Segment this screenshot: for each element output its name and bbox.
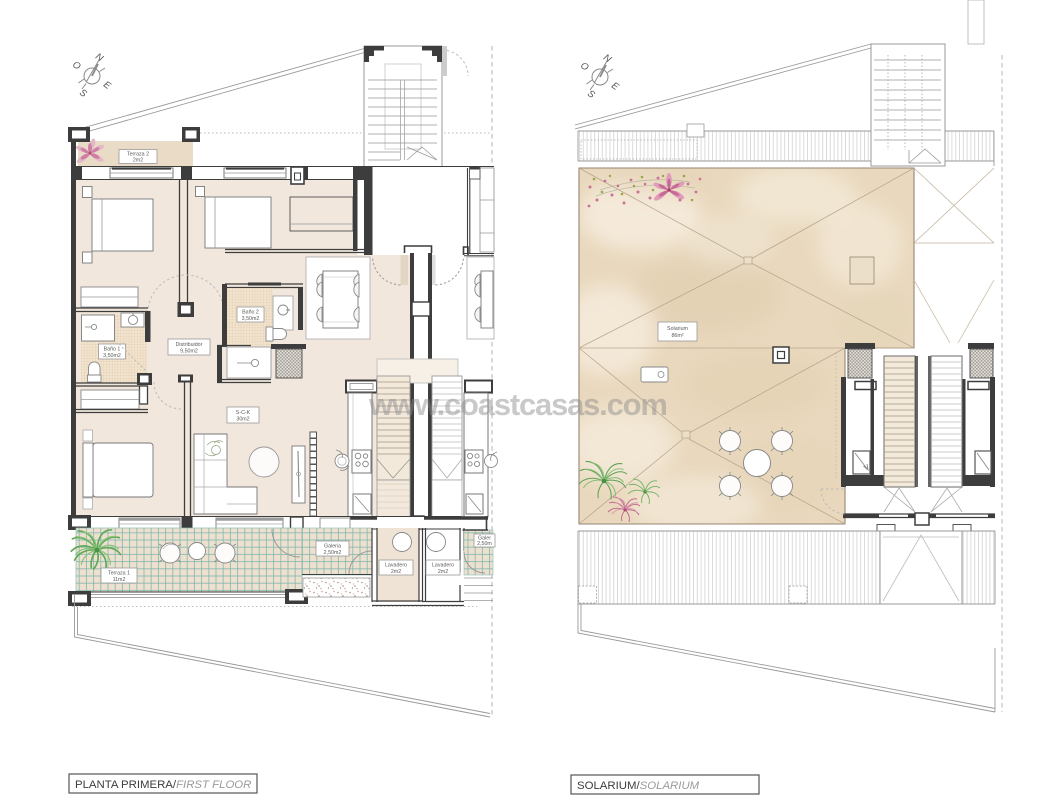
svg-text:Lavadero: Lavadero: [385, 563, 407, 569]
svg-text:30m2: 30m2: [236, 417, 249, 423]
svg-text:2m2: 2m2: [391, 569, 401, 575]
svg-text:Solarium: Solarium: [667, 326, 688, 332]
svg-text:3,50m2: 3,50m2: [103, 353, 121, 359]
svg-text:2,50m: 2,50m: [477, 541, 492, 547]
svg-text:2m2: 2m2: [438, 569, 448, 575]
svg-text:PLANTA PRIMERA/FIRST FLOOR: PLANTA PRIMERA/FIRST FLOOR: [75, 779, 251, 791]
svg-text:2m2: 2m2: [133, 158, 143, 164]
svg-text:9,50m2: 9,50m2: [180, 349, 198, 355]
svg-text:3,50m2: 3,50m2: [242, 316, 260, 322]
svg-text:2,50m2: 2,50m2: [324, 550, 342, 556]
svg-text:www.coastcasas.com: www.coastcasas.com: [368, 387, 667, 422]
svg-text:Galeria: Galeria: [324, 544, 341, 550]
svg-text:Lavadero: Lavadero: [432, 563, 454, 569]
svg-text:86m²: 86m²: [671, 333, 683, 339]
svg-text:Terraza 1: Terraza 1: [108, 571, 130, 577]
svg-text:Baño 1: Baño 1: [104, 347, 121, 353]
svg-text:Distribuidor: Distribuidor: [176, 342, 203, 348]
svg-text:11m2: 11m2: [113, 577, 126, 583]
svg-text:S-C-K: S-C-K: [236, 410, 251, 416]
svg-text:Baño 2: Baño 2: [242, 310, 259, 316]
svg-text:SOLARIUM/SOLARIUM: SOLARIUM/SOLARIUM: [577, 780, 700, 792]
